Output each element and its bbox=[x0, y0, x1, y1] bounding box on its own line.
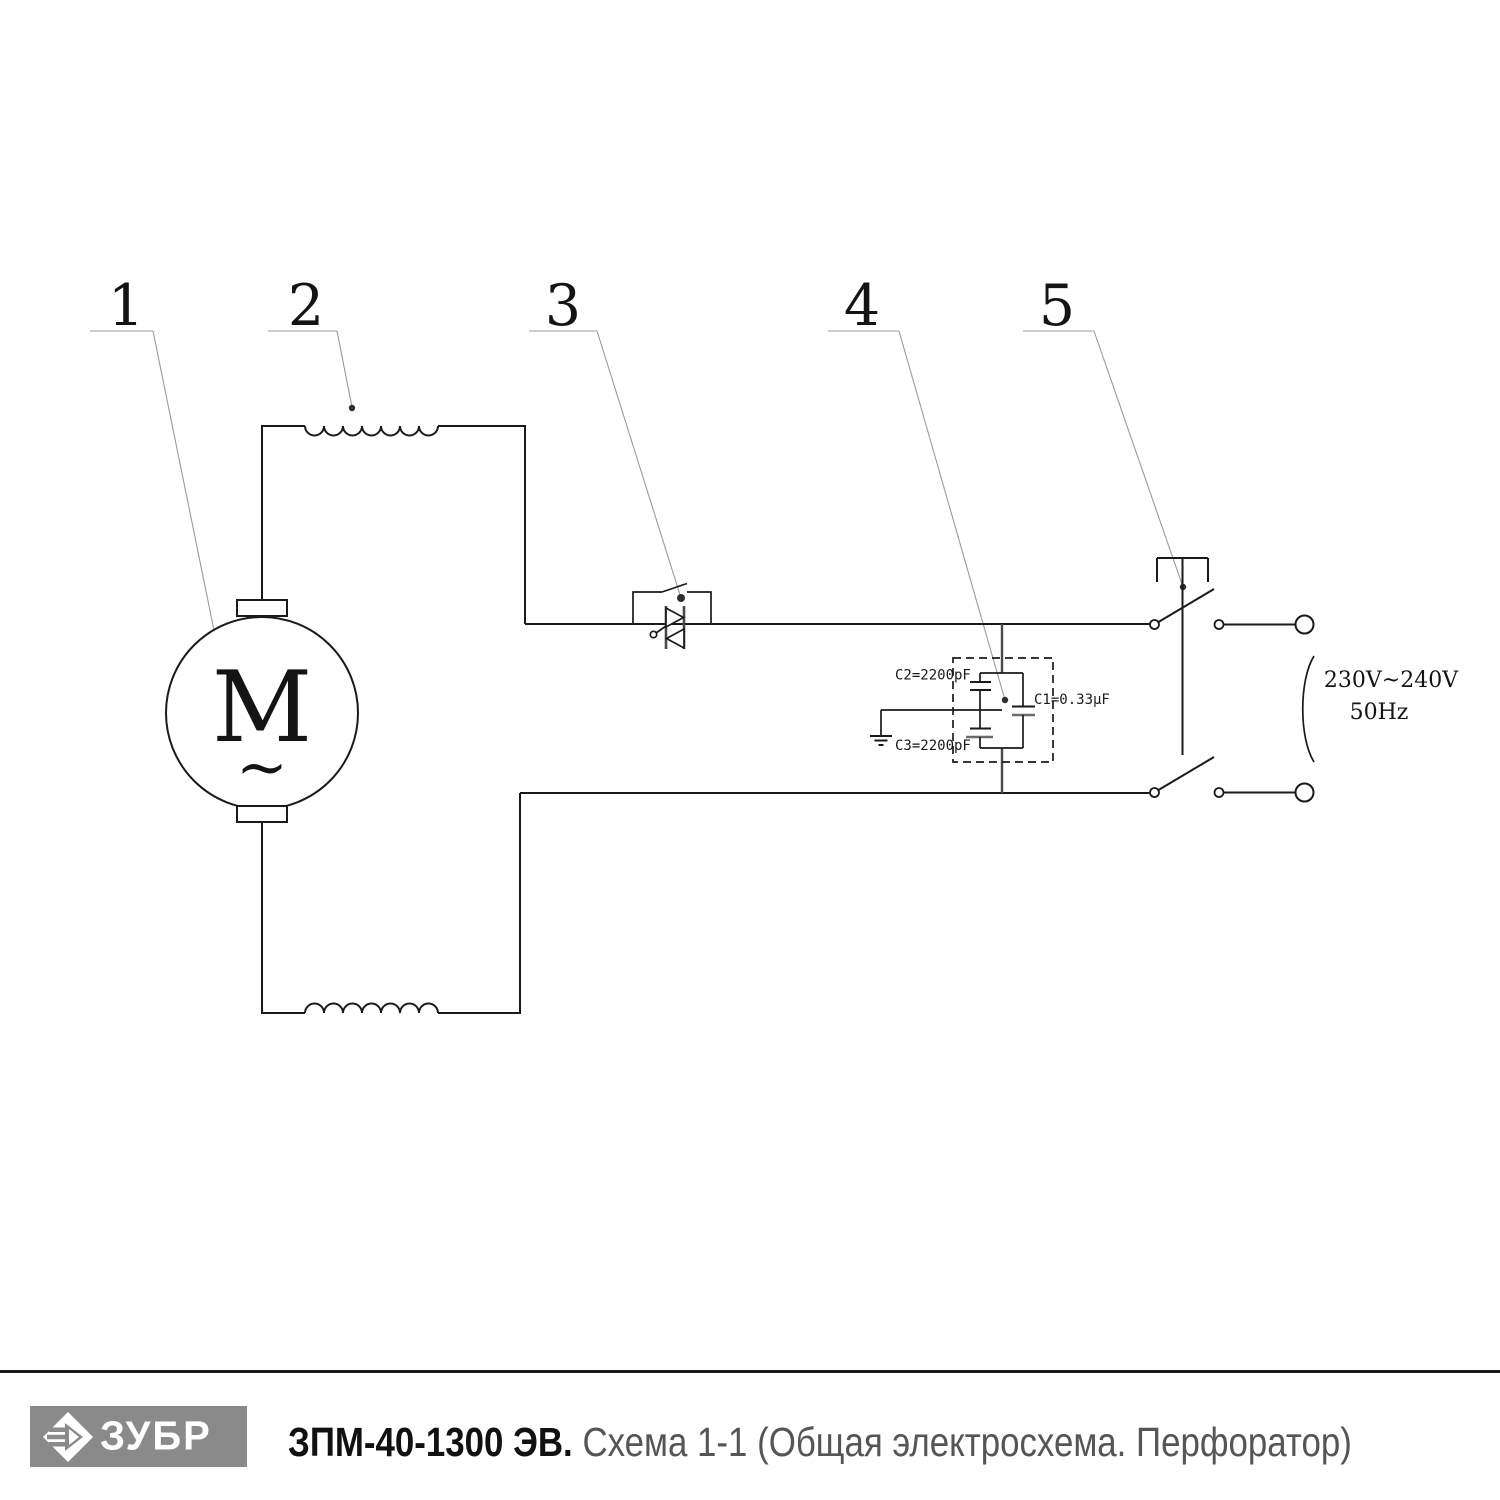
triac-gate-lead bbox=[656, 626, 666, 633]
bypass-box-left bbox=[633, 592, 662, 624]
callout-3-dot bbox=[677, 594, 685, 602]
callout-3-number: 3 bbox=[545, 273, 581, 339]
triac-triangle-lower bbox=[667, 629, 685, 648]
supply-rating: 230V~240V 50Hz bbox=[1303, 656, 1459, 762]
supply-voltage-label: 230V~240V bbox=[1324, 668, 1459, 693]
callout-2: 2 bbox=[268, 273, 355, 411]
callout-5-leader bbox=[1094, 331, 1183, 587]
coil-bottom bbox=[305, 1004, 438, 1014]
triac-gate-terminal bbox=[650, 631, 656, 637]
diagram-title: ЗПМ-40-1300 ЭВ. Схема 1-1 (Общая электро… bbox=[288, 1419, 1352, 1465]
upper-contact-left bbox=[1150, 620, 1159, 629]
bypass-box-right bbox=[687, 592, 711, 624]
stator-winding-top bbox=[262, 426, 525, 624]
callout-4-dot bbox=[1002, 697, 1008, 703]
callout-3-leader bbox=[597, 331, 681, 598]
callout-2-leader bbox=[337, 331, 352, 407]
circuit-diagram: 1 2 3 4 5 M ~ bbox=[0, 0, 1500, 1500]
upper-contact-right bbox=[1215, 620, 1224, 629]
callout-1: 1 bbox=[90, 273, 221, 653]
bypass-switch-blade bbox=[662, 584, 687, 593]
switch-pole-upper bbox=[1150, 589, 1314, 634]
callout-1-number: 1 bbox=[108, 273, 144, 339]
wire-coil-bottom-to-line bbox=[438, 793, 520, 1013]
callout-1-leader bbox=[153, 331, 218, 650]
lower-contact-left bbox=[1150, 788, 1159, 797]
callout-5-number: 5 bbox=[1039, 273, 1075, 339]
lower-contact-right bbox=[1215, 788, 1224, 797]
wire-motor-to-coil-top bbox=[262, 426, 305, 600]
diagram-subtitle: Схема 1-1 (Общая электросхема. Перфорато… bbox=[582, 1419, 1351, 1465]
callout-2-dot bbox=[349, 405, 355, 411]
stator-winding-bottom bbox=[262, 793, 520, 1013]
ground-symbol bbox=[870, 736, 892, 745]
motor-ac-symbol: ~ bbox=[236, 730, 288, 803]
callout-5: 5 bbox=[1023, 273, 1186, 590]
brand-name: ЗУБР bbox=[100, 1414, 212, 1460]
lower-blade bbox=[1159, 757, 1215, 790]
wire-coil-top-to-line bbox=[438, 426, 525, 624]
triac-regulator bbox=[633, 584, 711, 650]
callout-4-number: 4 bbox=[844, 273, 880, 339]
c2-value-label: C2=2200pF bbox=[895, 668, 971, 684]
motor-brush-bottom bbox=[237, 806, 287, 822]
power-switch bbox=[1150, 558, 1314, 802]
upper-supply-terminal bbox=[1296, 616, 1314, 634]
brand-logo: ЗУБР bbox=[30, 1406, 247, 1467]
wire-motor-to-coil-bottom bbox=[262, 822, 305, 1013]
motor-brush-top bbox=[237, 600, 287, 616]
upper-blade bbox=[1159, 589, 1215, 622]
motor-symbol: M ~ bbox=[166, 600, 358, 822]
switch-pole-lower bbox=[1150, 757, 1314, 802]
callout-2-number: 2 bbox=[288, 273, 324, 339]
supply-brace bbox=[1303, 656, 1314, 762]
model-name: ЗПМ-40-1300 ЭВ. bbox=[288, 1419, 573, 1465]
coil-top bbox=[305, 426, 438, 436]
lower-supply-terminal bbox=[1296, 784, 1314, 802]
callout-3: 3 bbox=[529, 273, 685, 602]
switch-actuator bbox=[1157, 558, 1208, 755]
c3-value-label: C3=2200pF bbox=[895, 738, 971, 754]
callout-4: 4 bbox=[828, 273, 1008, 703]
supply-frequency-label: 50Hz bbox=[1350, 700, 1409, 725]
zubr-bison-icon bbox=[42, 1411, 94, 1463]
c1-value-label: C1=0.33µF bbox=[1034, 692, 1110, 708]
callout-4-leader bbox=[899, 331, 1005, 700]
footer-divider bbox=[0, 1370, 1500, 1373]
